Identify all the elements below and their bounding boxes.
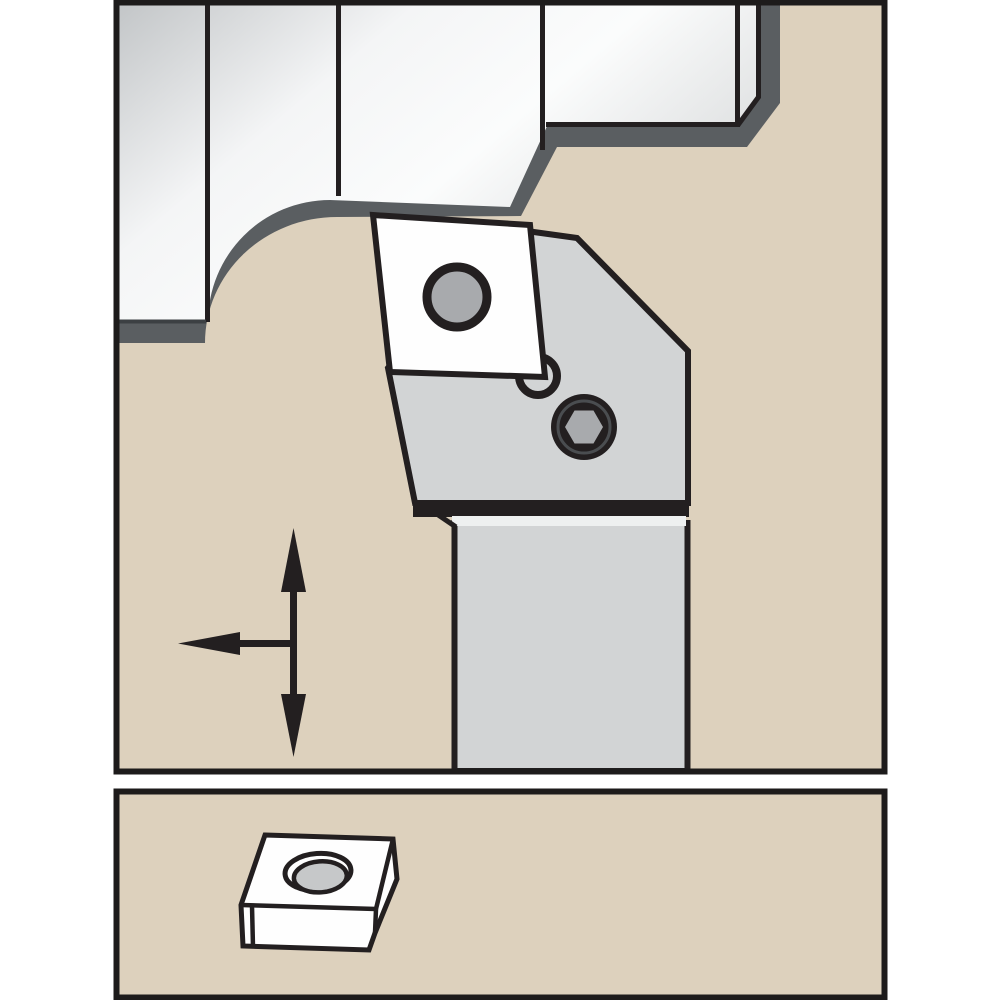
insert-3d-right-facet-edge: [375, 909, 376, 933]
clamp-screw: [551, 394, 617, 460]
hole-bore: [293, 860, 348, 895]
detail-panel: [117, 792, 885, 998]
insert-screw-hole: [427, 267, 487, 327]
hex-socket-icon: [563, 409, 605, 445]
insert-3d-left-facet-edge: [252, 906, 253, 947]
mounted-insert: [373, 215, 545, 377]
toolholder-shank: [455, 523, 688, 771]
illustration-canvas: [0, 0, 1000, 1000]
insert-3d-view: [241, 835, 397, 950]
detail-panel-frame: [117, 792, 885, 998]
main-panel: [117, 0, 885, 772]
toolholder-joint-highlight: [452, 516, 686, 526]
toolholder-illustration: [0, 0, 1000, 1000]
